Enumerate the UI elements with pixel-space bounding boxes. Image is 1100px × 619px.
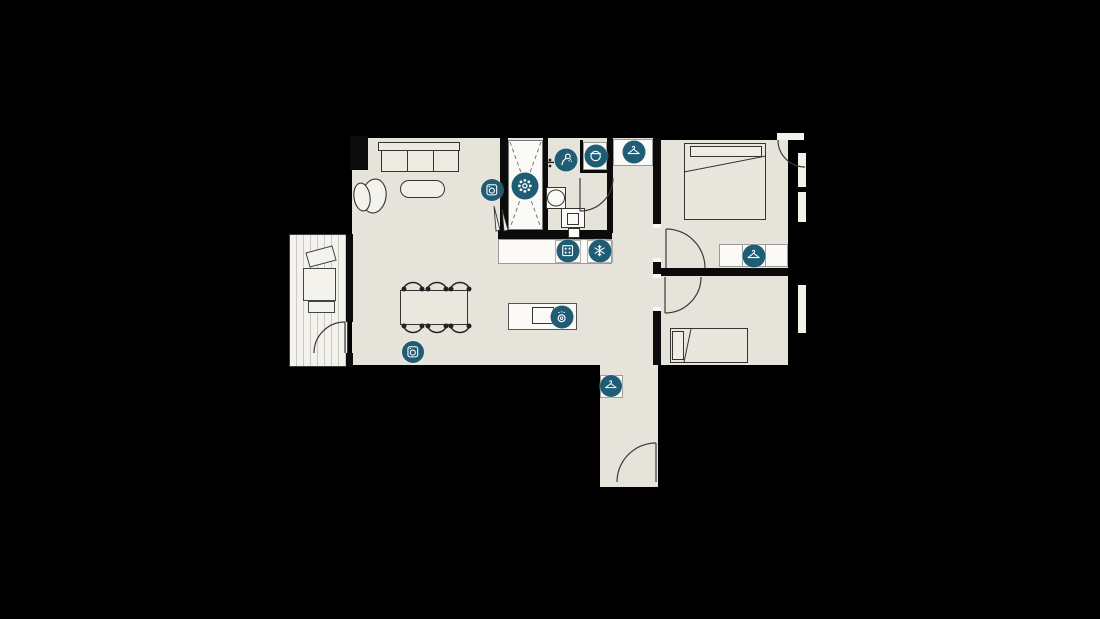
- rain-shower-icon: [512, 173, 539, 200]
- dishwasher-icon: [551, 306, 574, 329]
- freezer-icon: [589, 240, 612, 263]
- cooktop-icon: [557, 240, 580, 263]
- washing-machine-icon: [402, 341, 424, 363]
- washing-machine-icon: [481, 179, 503, 201]
- appliance-icon-layer: [0, 0, 1100, 619]
- wardrobe-hanger-icon: [623, 141, 646, 164]
- wardrobe-hanger-icon: [600, 375, 622, 397]
- wardrobe-hanger-icon: [743, 245, 766, 268]
- floor-plan-canvas: [0, 0, 1100, 619]
- washbasin-icon: [585, 145, 608, 168]
- hand-shower-icon: [555, 149, 578, 172]
